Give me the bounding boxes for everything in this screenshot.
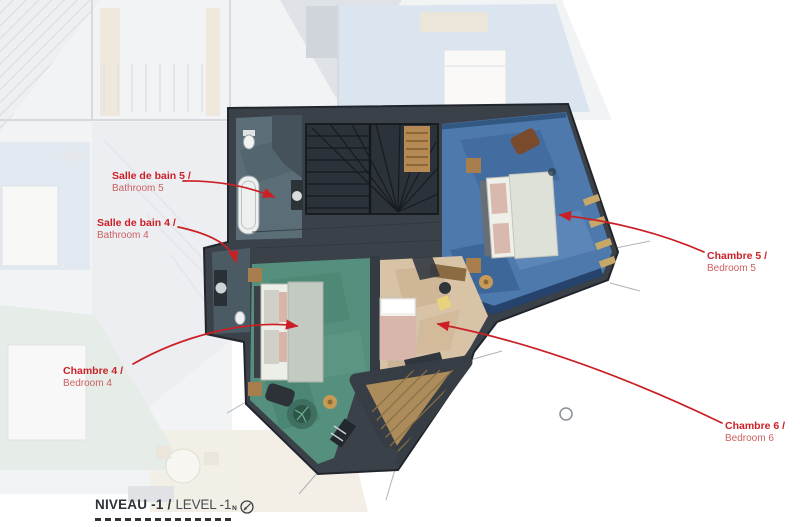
bathroom4-room <box>212 248 250 334</box>
desk-chair <box>439 282 451 294</box>
title-underline <box>95 518 231 521</box>
north-letter: N <box>232 505 237 513</box>
bed <box>254 282 323 382</box>
floor-plan-drawing <box>0 0 800 527</box>
label-bathroom4: Salle de bain 4 / Bathroom 4 <box>97 217 176 242</box>
label-bedroom6-fr: Chambre 6 / <box>725 420 785 432</box>
nightstand <box>248 382 262 396</box>
label-bedroom4-en: Bedroom 4 <box>63 378 123 390</box>
level-title-en: LEVEL -1 <box>175 497 231 512</box>
pillow <box>264 290 279 324</box>
nightstand <box>466 158 481 173</box>
floor-plan-page: Salle de bain 5 / Bathroom 5 Salle de ba… <box>0 0 800 527</box>
survey-point-marker <box>560 408 572 420</box>
label-bathroom4-en: Bathroom 4 <box>97 230 176 242</box>
partition-wall <box>370 256 380 380</box>
pillow <box>382 300 414 313</box>
bathroom5-room <box>236 115 303 240</box>
toilet <box>235 312 245 325</box>
label-bedroom5-en: Bedroom 5 <box>707 263 767 275</box>
pillow <box>493 223 511 254</box>
level-title: NIVEAU -1 / LEVEL -1 N <box>95 497 255 513</box>
level-title-fr: NIVEAU -1 / <box>95 497 171 512</box>
label-bedroom4-fr: Chambre 4 / <box>63 365 123 377</box>
washbasin <box>216 283 227 294</box>
label-bathroom4-fr: Salle de bain 4 / <box>97 217 176 229</box>
ladder-shelf <box>404 126 430 172</box>
pillow <box>490 183 508 214</box>
headboard <box>254 286 261 378</box>
duvet <box>509 172 558 259</box>
north-compass-icon <box>239 499 255 515</box>
duvet <box>288 282 323 382</box>
ghost-round-table <box>166 449 200 483</box>
label-bathroom5-fr: Salle de bain 5 / <box>112 170 191 182</box>
label-bedroom5: Chambre 5 / Bedroom 5 <box>707 250 767 275</box>
label-bedroom4: Chambre 4 / Bedroom 4 <box>63 365 123 390</box>
label-bedroom6: Chambre 6 / Bedroom 6 <box>725 420 785 445</box>
duvet <box>380 316 416 360</box>
nightstand <box>248 268 262 282</box>
toilet <box>244 135 255 149</box>
pillow <box>264 330 279 364</box>
bed <box>479 172 558 261</box>
label-bedroom6-en: Bedroom 6 <box>725 433 785 445</box>
label-bathroom5-en: Bathroom 5 <box>112 183 191 195</box>
bed <box>380 298 416 360</box>
label-bedroom5-fr: Chambre 5 / <box>707 250 767 262</box>
label-bathroom5: Salle de bain 5 / Bathroom 5 <box>112 170 191 195</box>
washbasin <box>292 191 302 201</box>
